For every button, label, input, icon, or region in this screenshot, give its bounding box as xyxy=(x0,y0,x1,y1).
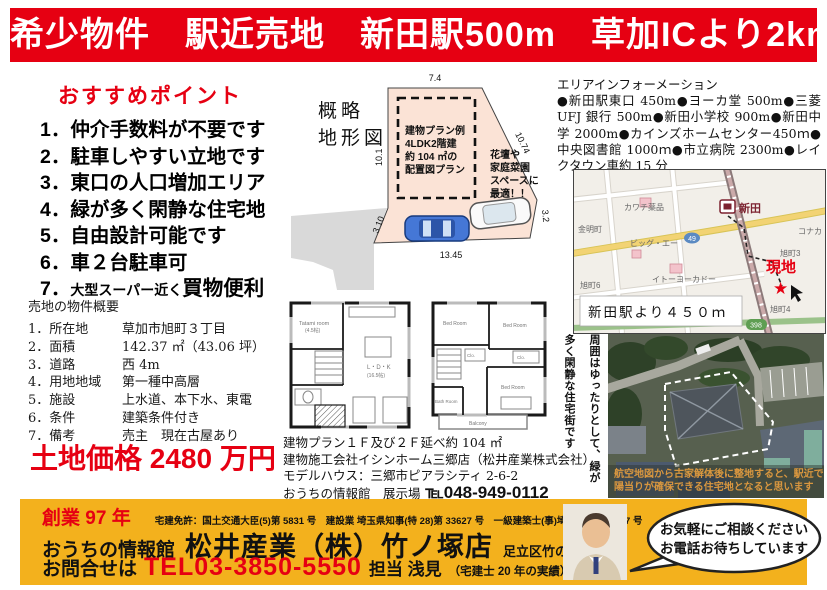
floor-plan-1f: Tatami room (4.5帖) L・D・K (16.5帖) xyxy=(291,303,409,427)
overview-row: 5．施設上水道、本下水、東電 xyxy=(28,392,284,410)
aerial-caption: 航空地図から古家解体後に整地すると、駅近でも 陽当りが確保できる住宅地となると思… xyxy=(608,465,824,498)
contact-phone: TEL03-3850-5550 xyxy=(144,553,362,582)
svg-text:建物プラン例: 建物プラン例 xyxy=(404,124,465,137)
svg-text:Bed Room: Bed Room xyxy=(443,321,467,327)
svg-text:イトーヨーカドー: イトーヨーカドー xyxy=(652,275,716,284)
svg-text:家庭菜園: 家庭菜園 xyxy=(490,161,530,174)
svg-text:Clo.: Clo. xyxy=(517,355,525,360)
area-info-title: エリアインフォーメーション xyxy=(557,77,821,93)
station-label: 新田 xyxy=(739,201,761,215)
route-shield-49: 49 xyxy=(684,233,700,244)
svg-text:Bath Room: Bath Room xyxy=(435,399,458,404)
svg-text:旭町6: 旭町6 xyxy=(580,280,601,290)
aerial-side-note: 周囲はゆったりとして、緑が 多く閑静な住宅街です xyxy=(556,334,606,500)
svg-text:Clo.: Clo. xyxy=(467,353,475,358)
neighbor-building-shape xyxy=(291,208,387,290)
overview-row: 3．道路西 4m xyxy=(28,357,284,375)
contact-person-note: （宅建士 20 年の実績） xyxy=(449,563,572,579)
svg-text:陽当りが確保できる住宅地となると思います: 陽当りが確保できる住宅地となると思います xyxy=(614,480,814,493)
svg-text:49: 49 xyxy=(688,236,696,243)
svg-text:(16.5帖): (16.5帖) xyxy=(367,372,385,379)
aerial-house-roof xyxy=(670,384,743,439)
map-caption: 新田駅より４５０ｍ xyxy=(588,305,727,320)
dim-top: 7.4 xyxy=(429,73,442,83)
car-icon-blue xyxy=(405,216,469,241)
points-section: おすすめポイント 1．仲介手数料が不要です 2．駐車しやすい立地です 3．東口の… xyxy=(14,80,286,304)
svg-text:Bed Room: Bed Room xyxy=(503,323,527,329)
speech-bubble: お気軽にご相談ください お電話お待ちしています xyxy=(628,501,822,579)
overview-row: 1．所在地草加市旭町３丁目 xyxy=(28,321,284,339)
point-item: 1．仲介手数料が不要です xyxy=(14,117,286,144)
svg-text:コナカ: コナカ xyxy=(798,227,822,236)
svg-text:配置図プラン: 配置図プラン xyxy=(405,163,465,176)
svg-text:(4.5帖): (4.5帖) xyxy=(305,327,321,334)
svg-text:スペースに: スペースに xyxy=(490,175,539,187)
point-item: 3．東口の人口増加エリア xyxy=(14,170,286,197)
floor-plans: Tatami room (4.5帖) L・D・K (16.5帖) xyxy=(287,297,553,433)
overview-row: 4．用地地域第一種中高層 xyxy=(28,374,284,392)
svg-text:金明町: 金明町 xyxy=(578,224,602,234)
area-information: エリアインフォーメーション ●新田駅東口 450m●ヨーカ堂 500m●三菱 U… xyxy=(557,77,821,174)
floor-plan-2f: Bed Room Bed Room Bed Room Bath Room Clo… xyxy=(433,303,545,429)
svg-text:カワチ薬品: カワチ薬品 xyxy=(624,202,664,212)
svg-text:旭町4: 旭町4 xyxy=(770,304,791,314)
point-item: 6．車２台駐車可 xyxy=(14,250,286,277)
station-icon xyxy=(720,200,735,213)
dim-left: 10.1 xyxy=(374,148,384,166)
land-price: 土地価格 2480 万円 xyxy=(30,437,276,477)
flyer-page: 希少物件 駅近売地 新田駅500m 草加ICより2km おすすめポイント 1．仲… xyxy=(0,0,827,590)
property-overview: 売地の物件概要 1．所在地草加市旭町３丁目 2．面積142.37 ㎡（43.06… xyxy=(28,296,284,446)
contact-label: お問合せは xyxy=(42,554,137,581)
footer-banner: 創業 97 年 宅建免許：国土交通大臣(5)第 5831 号 建設業 埼玉県知事… xyxy=(20,499,807,585)
plan-caption: 建物プラン１Ｆ及び２Ｆ延べ約 104 ㎡ 建物施工会社イシンホーム三郷店（松井産… xyxy=(283,435,595,502)
points-title: おすすめポイント xyxy=(14,80,286,110)
svg-text:旭町3: 旭町3 xyxy=(780,248,801,258)
dim-bottom: 13.45 xyxy=(440,250,463,260)
plot-diagram: 7.4 10.1 10.74 3.2 13.45 3.10 建物プラン例 4LD… xyxy=(283,66,555,298)
map-caption-box: 新田駅より４５０ｍ xyxy=(580,296,742,326)
street-map: 新田 カワチ薬品 金明町 ビッグ・エー イトーヨーカドー 旭町6 コナカ 旭町3… xyxy=(573,169,826,334)
svg-text:約 104 ㎡の: 約 104 ㎡の xyxy=(405,150,457,163)
svg-text:L・D・K: L・D・K xyxy=(367,365,391,371)
street-map-svg: 新田 カワチ薬品 金明町 ビッグ・エー イトーヨーカドー 旭町6 コナカ 旭町3… xyxy=(574,170,825,333)
overview-row: 6．条件建築条件付き xyxy=(28,410,284,428)
aerial-photo: 航空地図から古家解体後に整地すると、駅近でも 陽当りが確保できる住宅地となると思… xyxy=(608,334,824,498)
route-shield-398: 398 xyxy=(746,319,767,330)
svg-text:お電話お待ちしています: お電話お待ちしています xyxy=(660,540,808,556)
point-item: 5．自由設計可能です xyxy=(14,223,286,250)
area-info-body: ●新田駅東口 450m●ヨーカ堂 500m●三菱 UFJ 銀行 500m●新田小… xyxy=(557,93,821,174)
dim-right: 3.2 xyxy=(540,209,551,222)
point-item: 4．緑が多く閑静な住宅地 xyxy=(14,197,286,224)
headline-banner: 希少物件 駅近売地 新田駅500m 草加ICより2km xyxy=(10,8,817,62)
agent-photo xyxy=(563,504,627,580)
red-star-icon: ★ xyxy=(773,279,788,298)
svg-text:花壇や: 花壇や xyxy=(490,148,520,161)
overview-row: 2．面積142.37 ㎡（43.06 坪） xyxy=(28,339,284,357)
svg-text:398: 398 xyxy=(750,323,762,330)
svg-text:Tatami room: Tatami room xyxy=(299,321,330,327)
footer-contact-row: お問合せは TEL03-3850-5550 担当 浅見 （宅建士 20 年の実績… xyxy=(42,553,571,582)
svg-text:Balcony: Balcony xyxy=(469,421,487,427)
svg-text:Bed Room: Bed Room xyxy=(501,385,525,391)
contact-person: 担当 浅見 xyxy=(369,555,442,580)
svg-text:4LDK2階建: 4LDK2階建 xyxy=(405,137,458,150)
overview-title: 売地の物件概要 xyxy=(28,296,284,315)
svg-text:お気軽にご相談ください: お気軽にご相談ください xyxy=(660,521,808,537)
svg-text:ビッグ・エー: ビッグ・エー xyxy=(630,238,678,248)
point-item: 2．駐車しやすい立地です xyxy=(14,144,286,171)
svg-text:航空地図から古家解体後に整地すると、駅近でも: 航空地図から古家解体後に整地すると、駅近でも xyxy=(614,467,824,480)
aerial-parking xyxy=(760,362,824,402)
site-label: 現地 xyxy=(766,258,796,276)
